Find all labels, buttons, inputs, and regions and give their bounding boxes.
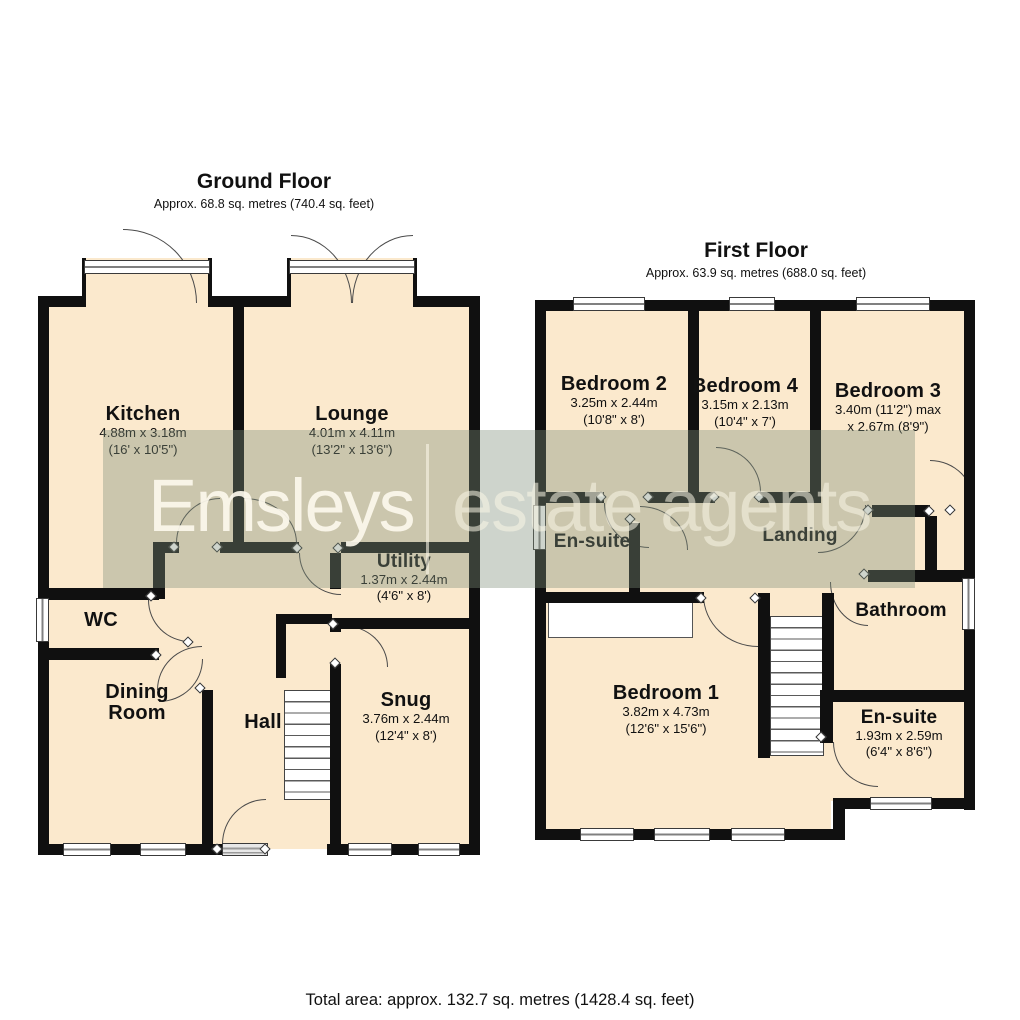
first-floor-area-text: Approx. 63.9 sq. metres (688.0 sq. feet) [646, 266, 866, 280]
window [729, 297, 775, 311]
window [856, 297, 930, 311]
window [962, 578, 975, 630]
room-label-hall: Hall [244, 712, 281, 733]
room-label-landing: Landing [762, 526, 837, 546]
wall-segment [546, 592, 704, 603]
wall-segment [330, 553, 341, 589]
room-label-dining-room: Dining Room [77, 682, 197, 724]
floorplan-canvas [0, 0, 1020, 1020]
wall-segment [822, 690, 975, 702]
wall-segment [822, 593, 834, 693]
wall-segment [330, 618, 480, 629]
wall-segment [760, 492, 810, 503]
window [731, 828, 785, 841]
wall-segment [233, 307, 244, 547]
ground-floor-area-text: Approx. 68.8 sq. metres (740.4 sq. feet) [154, 197, 374, 211]
wall-segment [758, 593, 770, 758]
ground-floor-title: Ground Floor Approx. 68.8 sq. metres (74… [154, 170, 374, 211]
floorplan-page: Ground Floor Approx. 68.8 sq. metres (74… [0, 0, 1020, 1020]
wall-segment [535, 300, 546, 840]
window [870, 797, 932, 810]
room-label-lounge: Lounge 4.01m x 4.11m (13'2" x 13'6") [309, 404, 395, 458]
window [573, 297, 645, 311]
window [580, 828, 634, 841]
first-floor-title-text: First Floor [646, 239, 866, 263]
wall-segment [964, 300, 975, 810]
window [533, 505, 546, 550]
room-label-kitchen: Kitchen 4.88m x 3.18m (16' x 10'5") [99, 404, 186, 458]
wall-segment [202, 690, 213, 844]
staircase [284, 690, 332, 800]
total-area-text: Total area: approx. 132.7 sq. metres (14… [306, 991, 695, 1010]
window [63, 843, 111, 856]
wall-segment [49, 588, 159, 600]
window [140, 843, 186, 856]
wall-segment [833, 798, 845, 840]
room-label-bathroom: Bathroom [855, 601, 946, 621]
room-label-bedroom-2: Bedroom 2 3.25m x 2.44m (10'8" x 8') [561, 374, 667, 428]
wall-segment [212, 296, 287, 307]
window [289, 260, 415, 274]
window [654, 828, 710, 841]
wall-segment [469, 296, 480, 855]
wall-segment [925, 516, 937, 574]
room-label-snug: Snug 3.76m x 2.44m (12'4" x 8') [362, 690, 449, 744]
room-label-bedroom-4: Bedroom 4 3.15m x 2.13m (10'4" x 7') [692, 376, 798, 430]
ground-floor-title-text: Ground Floor [154, 170, 374, 194]
window [418, 843, 460, 856]
wall-segment [648, 492, 688, 503]
room-label-wc: WC [84, 610, 118, 631]
room-label-bedroom-3: Bedroom 3 3.40m (11'2") max x 2.67m (8'9… [835, 381, 941, 435]
window [84, 260, 210, 274]
wall-segment [810, 311, 821, 503]
wall-segment [49, 648, 159, 660]
wall-segment [220, 542, 299, 553]
window [36, 598, 49, 642]
wall-segment [872, 505, 930, 517]
wall-segment [38, 296, 49, 855]
wall-segment [276, 614, 286, 678]
built-in-wardrobe [548, 600, 693, 638]
room-label-ensuite-rear: En-suite 1.93m x 2.59m (6'4" x 8'6") [855, 708, 942, 761]
window [348, 843, 392, 856]
first-floor-title: First Floor Approx. 63.9 sq. metres (688… [646, 239, 866, 280]
room-label-bedroom-1: Bedroom 1 3.82m x 4.73m (12'6" x 15'6") [613, 683, 719, 737]
room-label-utility: Utility 1.37m x 2.44m (4'6" x 8') [360, 552, 447, 605]
room-label-ensuite-front: En-suite [554, 532, 631, 552]
wall-segment [868, 570, 975, 582]
wall-segment [629, 523, 640, 592]
wall-segment [330, 664, 341, 844]
